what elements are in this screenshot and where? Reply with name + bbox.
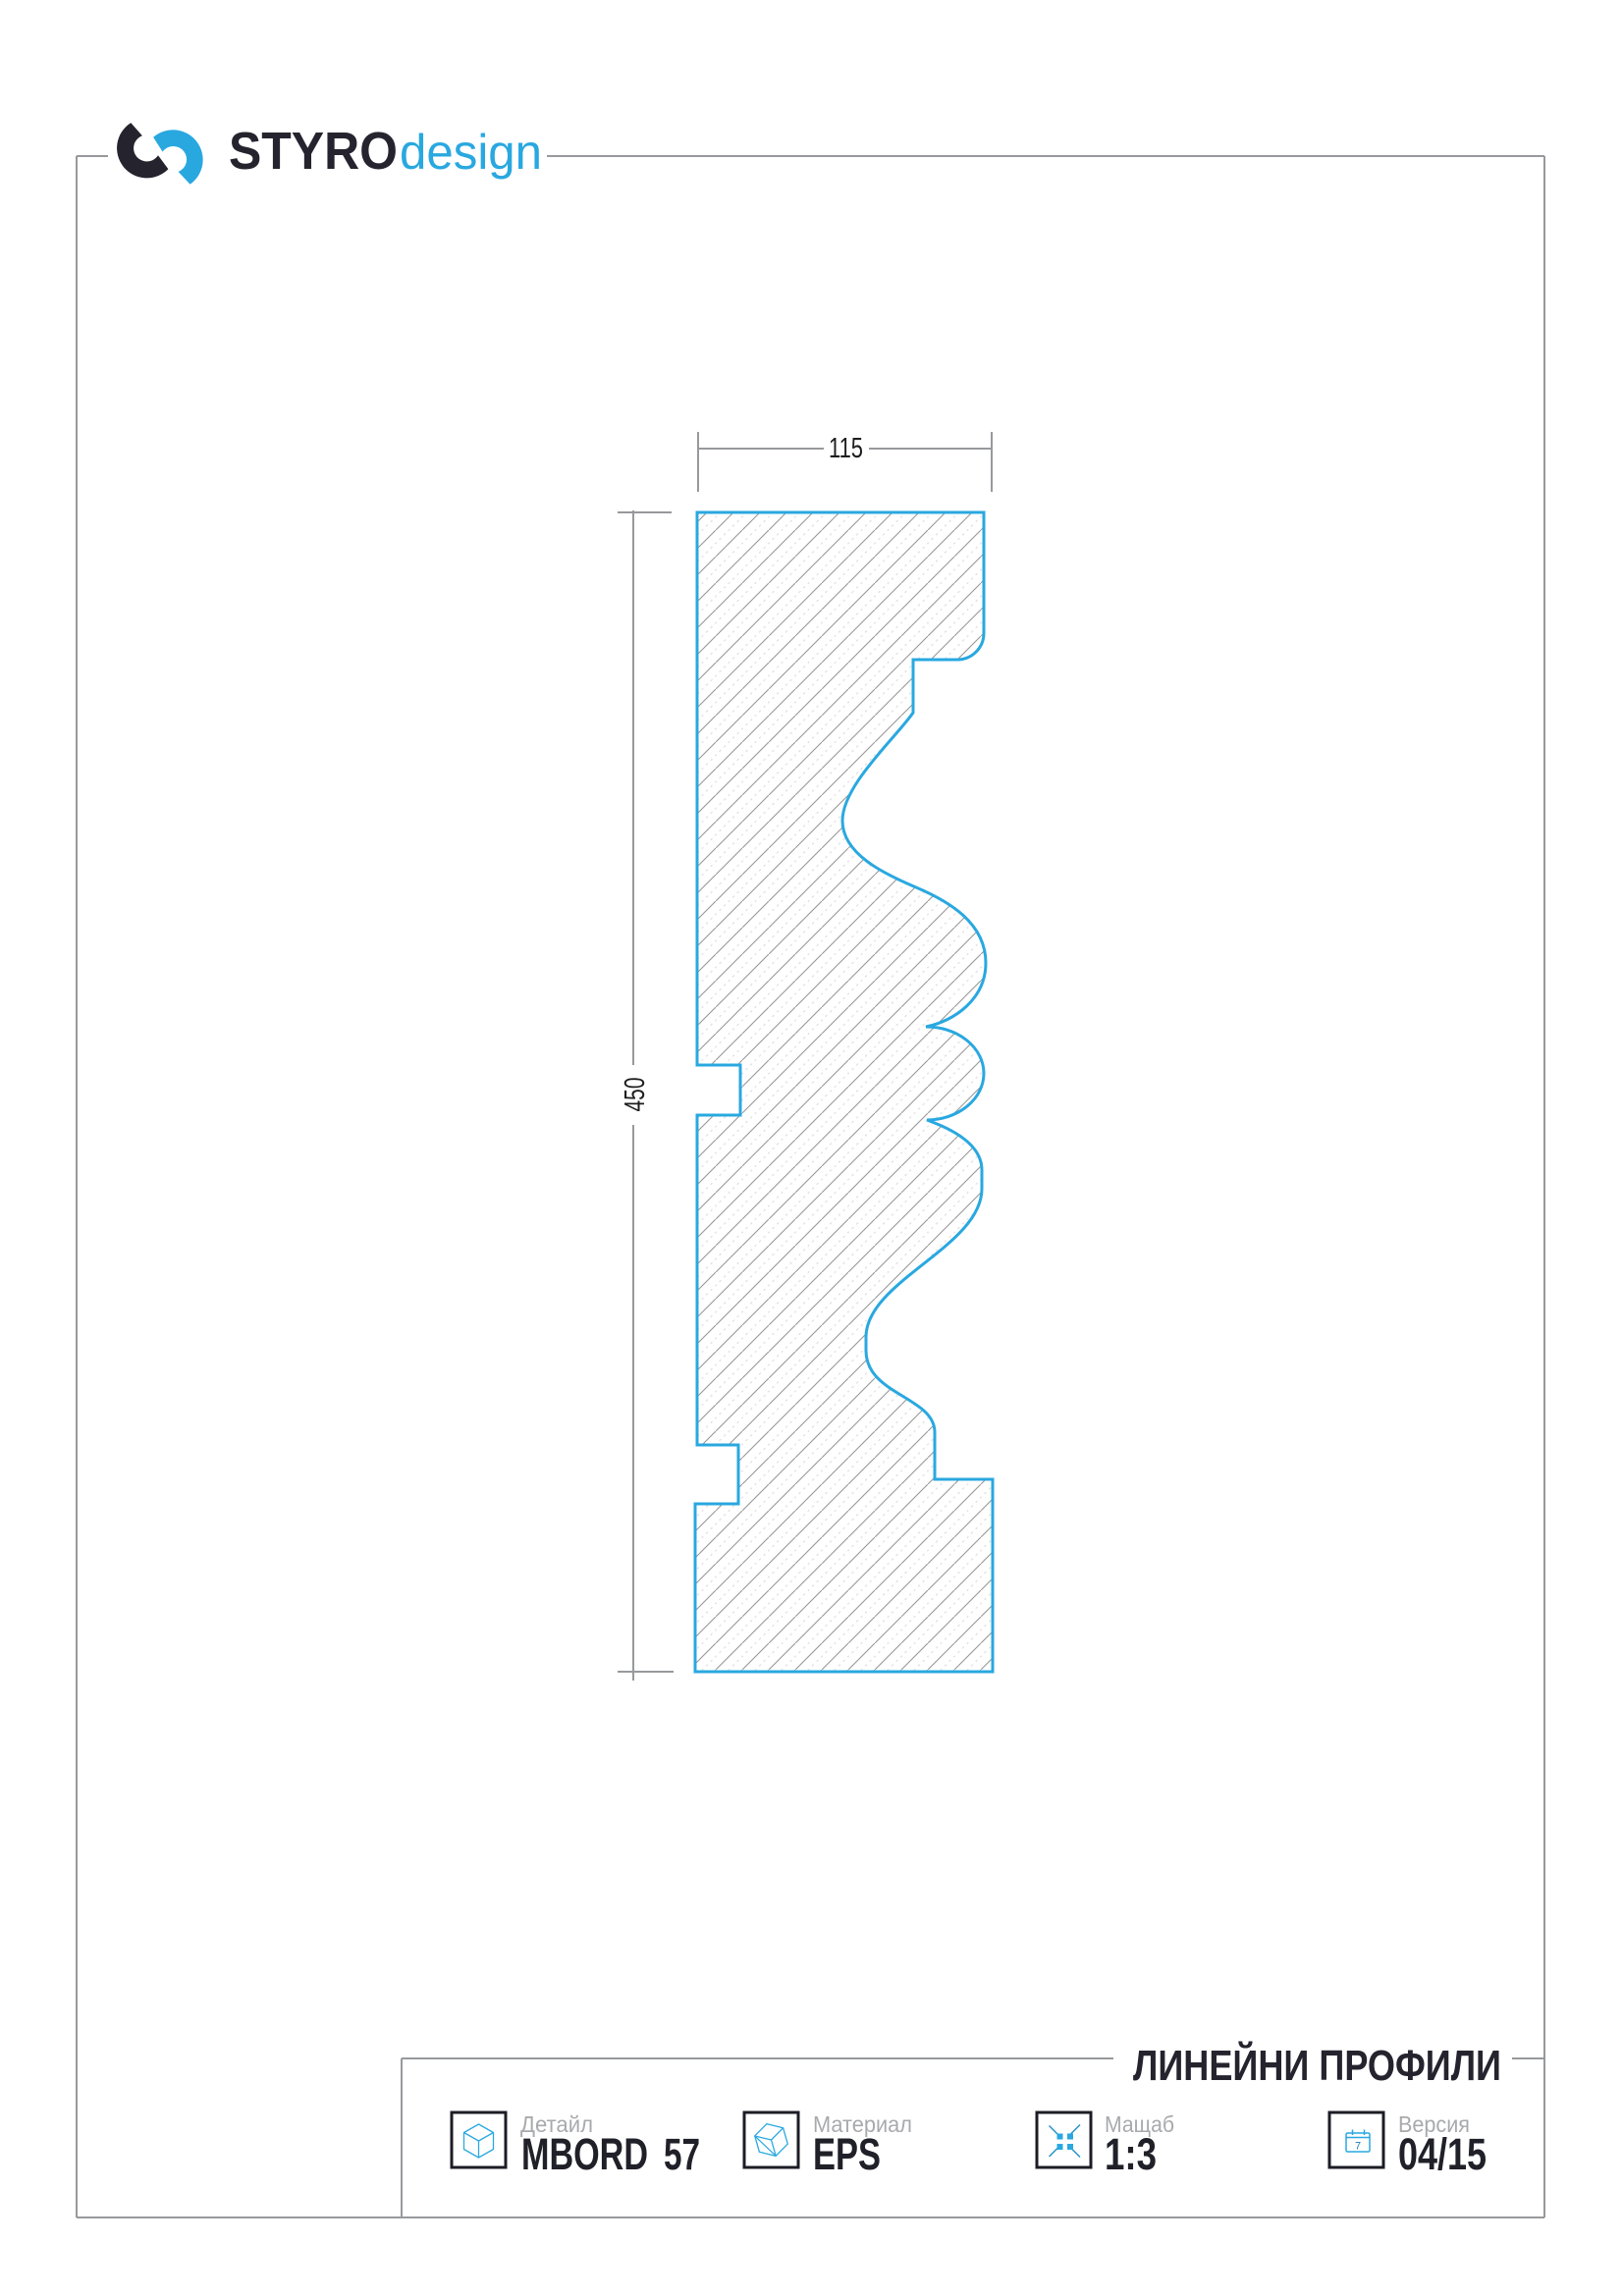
svg-text:EPS: EPS <box>813 2129 881 2179</box>
svg-text:1:3: 1:3 <box>1105 2129 1157 2179</box>
svg-text:MBORD: MBORD <box>521 2129 648 2179</box>
svg-text:04/15: 04/15 <box>1398 2129 1487 2179</box>
svg-text:57: 57 <box>664 2129 700 2179</box>
svg-text:7: 7 <box>1355 2141 1361 2153</box>
svg-text:115: 115 <box>829 433 863 464</box>
svg-text:STYRO: STYRO <box>229 122 398 181</box>
svg-text:ЛИНЕЙНИ ПРОФИЛИ: ЛИНЕЙНИ ПРОФИЛИ <box>1133 2040 1501 2090</box>
svg-text:design: design <box>400 125 542 180</box>
svg-text:450: 450 <box>620 1078 651 1112</box>
